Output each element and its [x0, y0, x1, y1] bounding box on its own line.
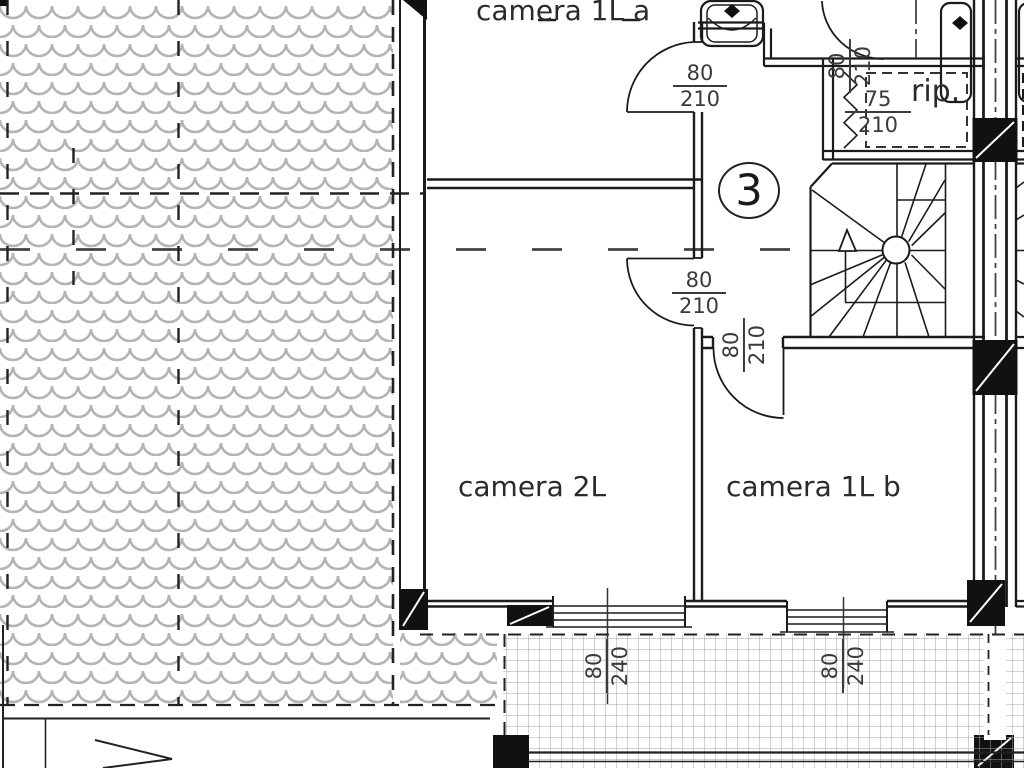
valve-icon	[952, 16, 968, 30]
staircase	[810, 163, 973, 337]
dim-door-bath: 80 210	[826, 39, 874, 93]
dim-door-rip: 75 210	[845, 88, 911, 136]
floor-plan: camera 1L a camera 2L camera 1L b rip. 3…	[0, 0, 1024, 768]
room-label-rip: rip.	[911, 74, 960, 109]
room-label-camera-2l: camera 2L	[458, 470, 606, 503]
balcony	[420, 634, 1024, 768]
dim-window-camera-1l-b: 80 240	[819, 639, 867, 693]
mirrored-shower-icon	[1019, 3, 1024, 102]
room-label-camera-1l-b: camera 1L b	[726, 470, 901, 503]
dim-window-camera-2l: 80 240	[583, 639, 631, 693]
dim-door-camera-1l-a: 80 210	[673, 62, 727, 110]
room-label-camera-1l-a: camera 1L a	[476, 0, 650, 27]
dim-door-camera-1l-b: 80 210	[720, 318, 768, 372]
tap-icon	[724, 4, 740, 18]
unit-number: 3	[735, 166, 762, 216]
unit-number-badge: 3	[718, 162, 780, 219]
section-arrow	[95, 740, 172, 768]
balcony-pillar	[493, 735, 529, 768]
dim-door-camera-2l: 80 210	[672, 269, 726, 317]
